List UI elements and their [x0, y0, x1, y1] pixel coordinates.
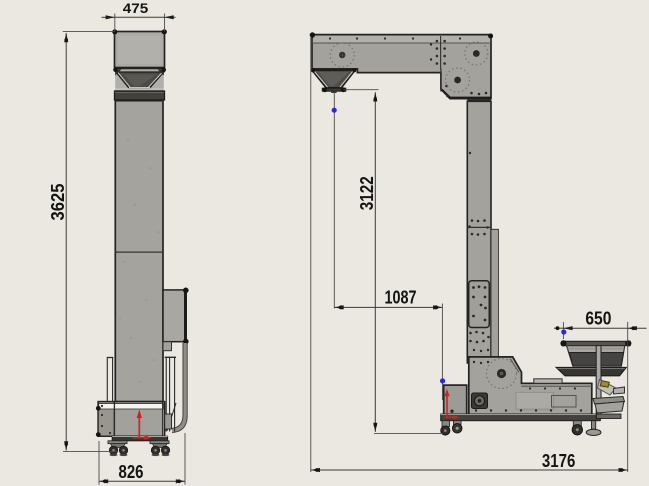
- svg-text:3625: 3625: [48, 184, 68, 221]
- svg-text:475: 475: [123, 1, 149, 16]
- svg-text:1087: 1087: [385, 288, 417, 308]
- svg-text:650: 650: [585, 309, 611, 329]
- svg-text:3122: 3122: [357, 176, 377, 210]
- svg-text:826: 826: [119, 462, 144, 482]
- svg-text:3176: 3176: [542, 451, 576, 471]
